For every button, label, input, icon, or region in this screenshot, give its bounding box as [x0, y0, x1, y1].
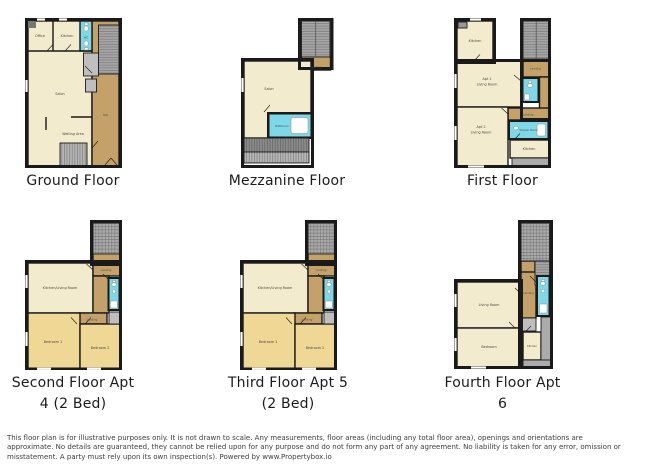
tile-strip-bottom — [523, 360, 551, 367]
cupboard — [458, 22, 467, 28]
mezzanine-floor-plan: Salon Landing Bathroom — [241, 18, 334, 168]
room-label-bedroom2: Bedroom 2 — [90, 346, 109, 350]
plan-title-fourth: Fourth Floor Apt 6 — [440, 373, 565, 415]
stairs-lower — [60, 143, 87, 166]
tile-strip — [512, 158, 550, 166]
third-floor-block: Kitchen/Living Room Landing Landing Bedr… — [222, 220, 354, 415]
store-box — [85, 79, 96, 92]
room-label-bathroom: Bathroom — [275, 124, 289, 128]
disclaimer: This floor plan is for illustrative purp… — [7, 434, 665, 462]
plan-title-second-line2: 4 (2 Bed) — [0, 394, 146, 415]
room-landing — [521, 272, 536, 318]
plan-title-third: Third Floor Apt 5 (2 Bed) — [222, 373, 354, 415]
room-label-hall: Hall — [102, 113, 107, 117]
store-box — [109, 312, 121, 324]
second-floor-plan: Kitchen/Living Room Landing Landing Bedr… — [25, 220, 122, 370]
room-label-bedroom2: Bedroom 2 — [305, 346, 324, 350]
plan-title-second: Second Floor Apt 4 (2 Bed) — [0, 373, 146, 415]
room-label-apt1: Apt 1 — [482, 77, 491, 81]
stairs-upper — [98, 25, 119, 74]
fourth-floor-block: Living Room Landing Bedroom Kitchen Four… — [440, 220, 565, 415]
stairs-lower-dark — [244, 138, 309, 152]
store-box — [324, 312, 336, 324]
room-label-bedroom: Bedroom — [481, 345, 497, 349]
plan-title-ground: Ground Floor — [0, 171, 146, 192]
room-label-landing-lower: Landing — [86, 318, 97, 322]
third-floor-plan: Kitchen/Living Room Landing Landing Bedr… — [240, 220, 337, 370]
disclaimer-line-2: approximate. No details are guaranteed, … — [7, 443, 665, 452]
room-label-kitchen: Kitchen — [526, 344, 536, 348]
room-label-apt1-living: Living Room — [477, 83, 499, 87]
room-label-landing: Landing — [523, 291, 534, 295]
bathtub — [291, 118, 308, 134]
room-label-living: Living Room — [478, 303, 500, 307]
room-label-bedroom1: Bedroom 1 — [43, 340, 62, 344]
plan-title-third-line2: (2 Bed) — [222, 394, 354, 415]
fourth-floor-plan: Living Room Landing Bedroom Kitchen — [453, 220, 553, 370]
room-label-landing-upper: Landing — [100, 268, 111, 272]
plan-title-third-line1: Third Floor Apt 5 — [222, 373, 354, 394]
room-label-landing-lower: Landing — [301, 318, 312, 322]
ground-floor-block: Office Kitchen WC Salon Hall Waiting Are… — [0, 18, 146, 192]
stairs-tower — [521, 223, 550, 261]
plan-title-first: First Floor — [440, 171, 565, 192]
stairs-tower — [93, 223, 120, 254]
plan-title-second-line1: Second Floor Apt — [0, 373, 146, 394]
room-label-apt2-living: Living Room — [471, 131, 493, 135]
room-label-shower-room: Shower Room — [519, 128, 538, 132]
tile-strip-right — [541, 317, 551, 367]
room-label-wc: WC — [83, 36, 88, 40]
disclaimer-line-1: This floor plan is for illustrative purp… — [7, 434, 665, 443]
room-apt2-living — [457, 107, 508, 166]
ground-floor-plan: Office Kitchen WC Salon Hall Waiting Are… — [25, 18, 122, 168]
lift-box — [83, 53, 98, 76]
room-label-landing-upper: Landing — [530, 67, 541, 71]
room-label-kitchen-living: Kitchen/Living Room — [257, 286, 292, 290]
room-label-office: Office — [35, 34, 45, 38]
room-label-apt2: Apt 2 — [476, 125, 485, 129]
hall-strip — [93, 276, 109, 313]
room-label-waiting-area: Waiting Area — [62, 132, 84, 136]
disclaimer-line-3: misstatement. A party must rely upon its… — [7, 453, 665, 462]
hall-strip — [308, 276, 324, 313]
mezzanine-floor-block: Salon Landing Bathroom Mezzanine Floor — [222, 18, 352, 192]
second-floor-block: Kitchen/Living Room Landing Landing Bedr… — [0, 220, 146, 415]
room-label-kitchen-apt2: Kitchen — [523, 147, 536, 151]
store-box — [521, 318, 536, 331]
corner-cupboard — [28, 21, 36, 28]
room-label-landing-lower: Landing — [523, 113, 534, 117]
room-label-salon: Salon — [55, 92, 64, 96]
floorplan-sheet: Office Kitchen WC Salon Hall Waiting Are… — [0, 0, 668, 467]
room-label-kitchen-living: Kitchen/Living Room — [42, 286, 77, 290]
room-label-salon: Salon — [264, 87, 273, 91]
plan-title-mezzanine: Mezzanine Floor — [222, 171, 352, 192]
first-floor-plan: Kitchen Apt 1 Living Room Landing Landin… — [454, 18, 551, 168]
first-floor-block: Kitchen Apt 1 Living Room Landing Landin… — [440, 18, 565, 192]
room-label-landing: Landing — [310, 65, 321, 69]
room-label-landing-upper: Landing — [315, 268, 326, 272]
room-label-bedroom1: Bedroom 1 — [258, 340, 277, 344]
room-label-kitchen: Kitchen — [60, 34, 73, 38]
room-label-kitchen-apt1: Kitchen — [469, 39, 482, 43]
stairs-lower-light — [244, 152, 309, 163]
stairs-tower — [308, 223, 335, 254]
